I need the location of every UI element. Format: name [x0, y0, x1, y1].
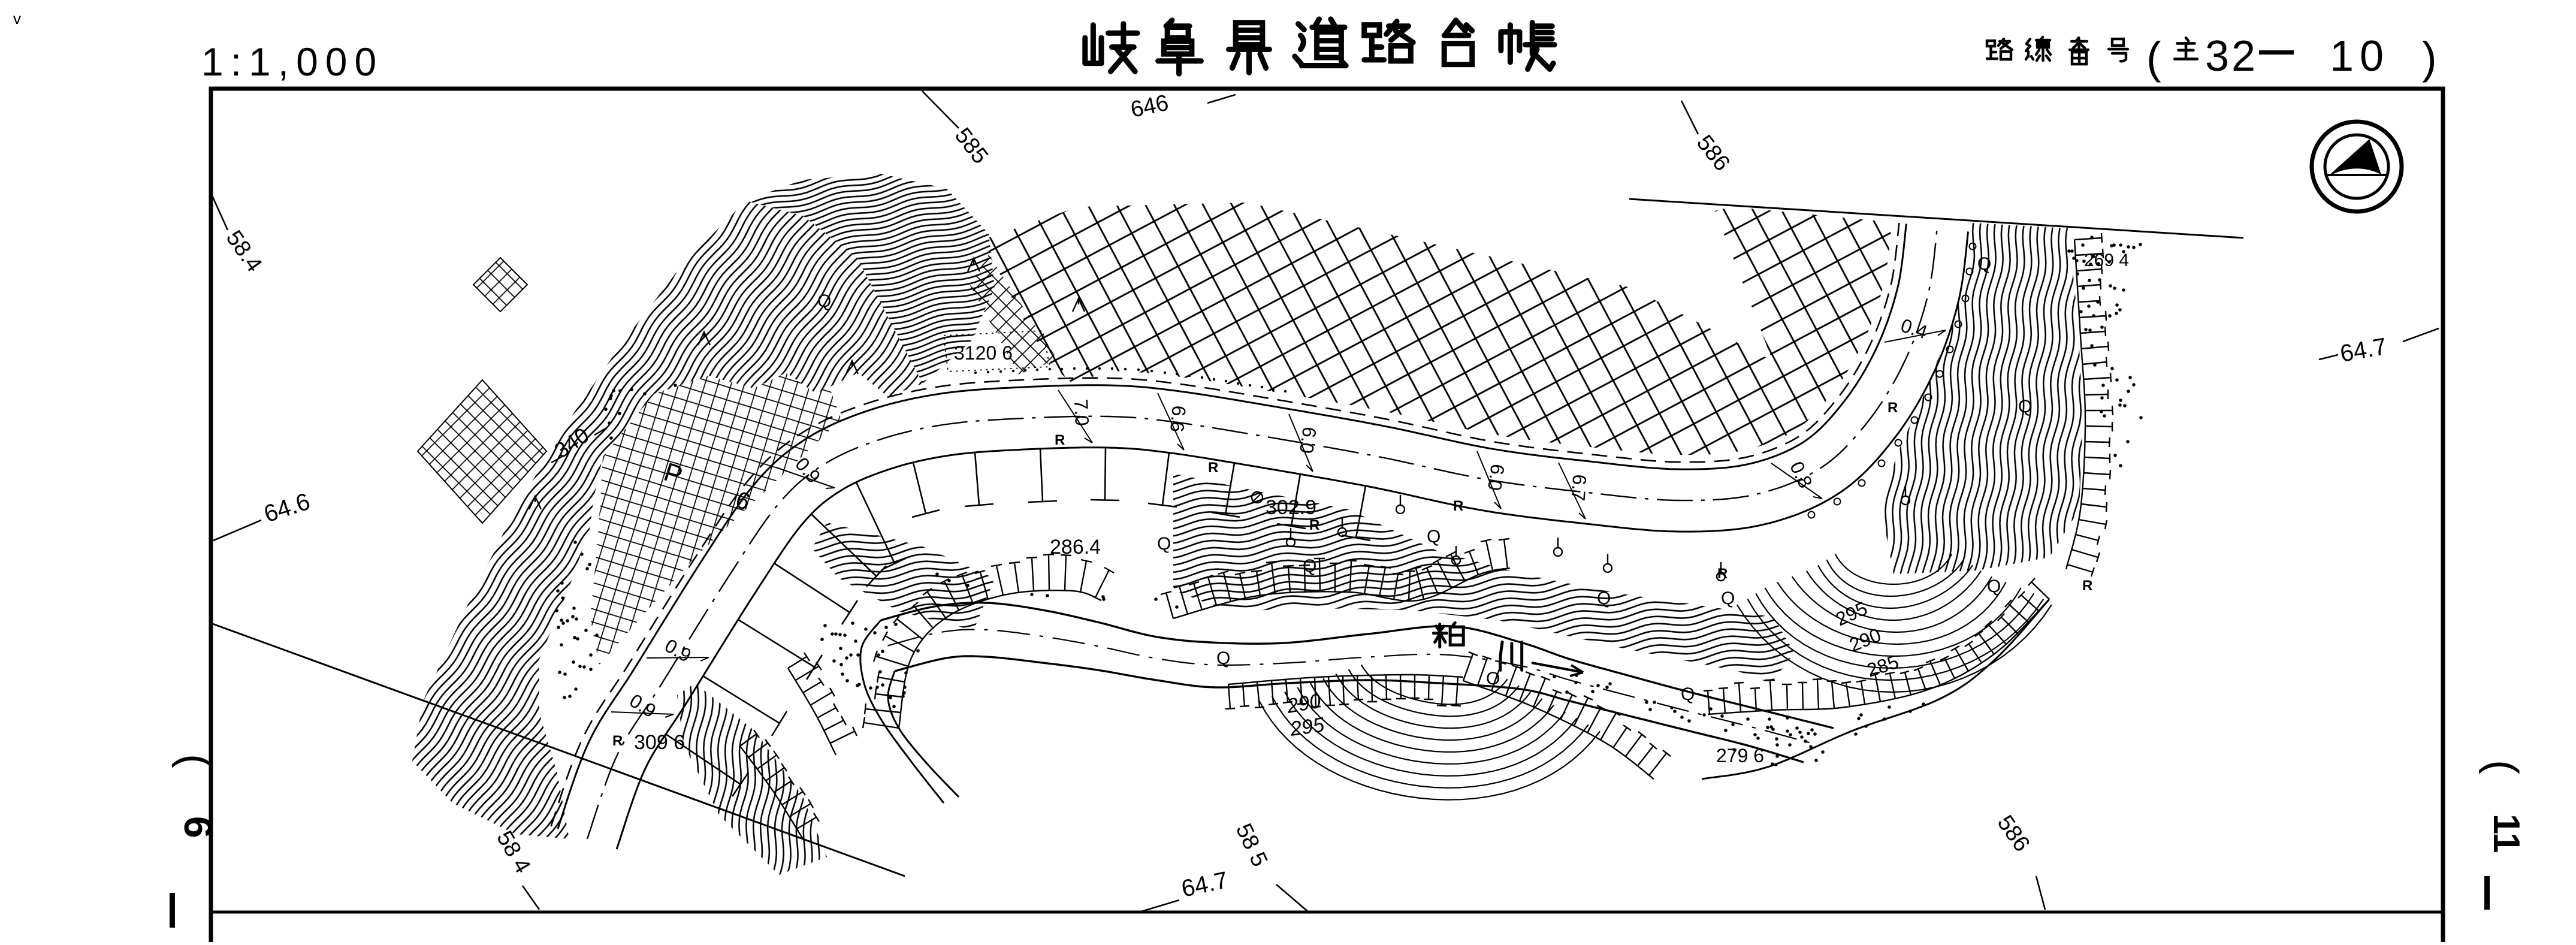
svg-text:7.0: 7.0 — [1070, 398, 1093, 426]
svg-text:10: 10 — [2330, 32, 2390, 80]
svg-text:11: 11 — [2486, 814, 2527, 853]
svg-text:309 6: 309 6 — [634, 731, 685, 754]
svg-text:R: R — [1208, 460, 1218, 476]
svg-text:R: R — [1309, 517, 1319, 533]
svg-text:Q: Q — [2018, 397, 2032, 416]
svg-text:302.9: 302.9 — [1266, 496, 1316, 519]
svg-text:Q: Q — [1977, 254, 1991, 274]
svg-text:R: R — [1717, 566, 1728, 582]
svg-text:286.4: 286.4 — [1050, 536, 1101, 558]
svg-text:(: ( — [2146, 33, 2161, 83]
svg-text:6.0: 6.0 — [1295, 425, 1321, 455]
svg-text:R: R — [1055, 432, 1065, 448]
svg-text:6.7: 6.7 — [1567, 473, 1590, 502]
svg-text:3120 6: 3120 6 — [954, 342, 1013, 364]
svg-text:(: ( — [2478, 760, 2526, 774]
svg-text:Q: Q — [1303, 556, 1316, 576]
svg-text:295: 295 — [1288, 713, 1326, 741]
svg-text:R: R — [1453, 498, 1463, 514]
svg-text:279 6: 279 6 — [1716, 745, 1764, 766]
svg-text:v: v — [13, 10, 21, 28]
svg-text:R: R — [1888, 400, 1898, 416]
svg-text:6: 6 — [176, 816, 221, 838]
svg-text:Q: Q — [1427, 527, 1440, 547]
svg-text:269 4: 269 4 — [2084, 250, 2129, 270]
svg-text:Q: Q — [817, 291, 831, 311]
svg-text:6.6: 6.6 — [1166, 404, 1190, 433]
svg-text:R: R — [612, 733, 623, 749]
svg-text:Q: Q — [1597, 588, 1611, 608]
svg-text:Q: Q — [1216, 648, 1230, 668]
svg-text:32: 32 — [2205, 32, 2258, 80]
svg-text:Q: Q — [1987, 576, 2001, 596]
svg-text:Q: Q — [1486, 669, 1500, 689]
svg-text:6.0: 6.0 — [1484, 463, 1509, 492]
svg-text:(: ( — [171, 754, 219, 768]
svg-text:): ) — [2422, 33, 2437, 83]
svg-text:Q: Q — [1157, 534, 1171, 554]
svg-text:Q: Q — [1721, 588, 1735, 608]
svg-text:R: R — [2082, 578, 2092, 594]
svg-text:Q: Q — [1681, 684, 1695, 704]
svg-text:1:1,000: 1:1,000 — [201, 40, 383, 84]
